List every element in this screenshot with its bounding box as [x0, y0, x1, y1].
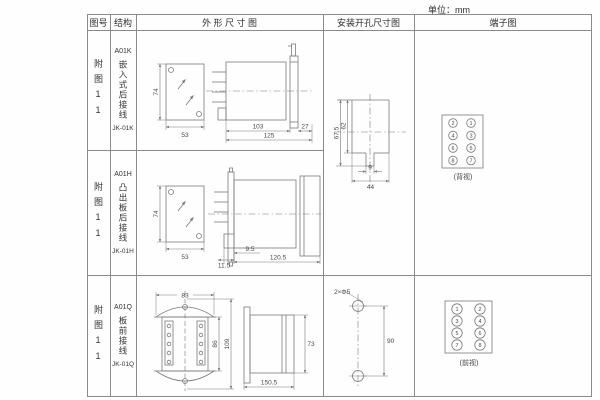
terminal-number: 6: [478, 331, 481, 337]
terminal-number: 4: [451, 134, 454, 140]
terminal-number: 4: [478, 319, 481, 325]
terminal-number: 2: [451, 121, 454, 127]
terminal-number: 1: [469, 121, 472, 127]
grid-line: [323, 14, 324, 397]
dim-cutout-outer-h: 67.5: [334, 126, 341, 139]
dim-side-a: 11.5: [218, 263, 231, 270]
front-view: 74 53: [153, 186, 204, 261]
code-row3: JK-01Q: [112, 361, 134, 368]
side-view: 73 150.5: [244, 307, 315, 390]
model-row3: A01Q: [114, 304, 132, 311]
header-structure: 结构: [110, 14, 136, 30]
dim-side-height: 73: [307, 341, 315, 348]
dim-side-b: 27: [301, 124, 309, 131]
grid-line: [87, 275, 592, 276]
dim-front-height: 74: [153, 210, 160, 218]
fig-no-cell-row1: 附图11: [87, 30, 110, 150]
outline-drawing-jk01h: 74 53 9.5 11.5 120.5: [152, 166, 322, 269]
spec-sheet-page: 单位：mm 图号 结构 外 形 尺 寸 图 安装开孔尺寸图 端子图 附图11 A…: [0, 0, 600, 400]
front-view: 83 86 109: [154, 291, 234, 391]
terminal-number: 7: [469, 159, 472, 165]
structure-desc-row2: 凸出板后接线: [117, 183, 129, 243]
header-outline: 外 形 尺 寸 图: [136, 14, 323, 30]
terminal-number: 6: [451, 146, 454, 152]
terminal-number: 3: [455, 319, 458, 325]
model-row1: A01K: [114, 48, 131, 55]
header-install: 安装开孔尺寸图: [323, 14, 414, 30]
terminal-number: 7: [455, 343, 458, 349]
terminal-number: 8: [451, 159, 454, 165]
dim-front-outer-h: 109: [224, 338, 231, 349]
dim-side-length: 150.5: [261, 380, 278, 387]
outline-drawing-jk01k: 74 53 103 27 125: [152, 44, 322, 147]
dim-front-width: 53: [181, 254, 189, 261]
terminal-number: 2: [478, 307, 481, 313]
dim-front-inner-h: 86: [212, 340, 219, 348]
terminal-diagram-q: 1 2 3 4 5 6 7 8: [444, 300, 494, 355]
grid-line: [87, 30, 592, 31]
dim-side-c: 120.5: [270, 255, 287, 262]
code-row2: JK-01H: [112, 248, 134, 255]
grid-line: [414, 14, 415, 397]
side-view: 103 27 125: [206, 44, 314, 143]
structure-cell-row3: A01Q 板前接线 JK-01Q: [110, 275, 136, 397]
structure-desc-row1: 嵌入式后接线: [117, 60, 129, 120]
fig-no-row3: 附图11: [92, 305, 105, 367]
outline-drawing-jk01q: 83 86 109 73 150.5: [146, 287, 318, 394]
terminal-number: 1: [455, 307, 458, 313]
structure-cell-row1: A01K 嵌入式后接线 JK-01K: [110, 30, 136, 150]
header-fig-no: 图号: [87, 14, 110, 30]
dim-side-c: 125: [264, 133, 275, 140]
dim-hole-spacing: 90: [387, 338, 395, 345]
dim-cutout-width: 44: [367, 184, 375, 191]
dim-side-a: 103: [253, 124, 264, 131]
view-label-rear: (背视): [440, 172, 486, 182]
dim-front-width: 53: [181, 132, 189, 139]
terminal-diagram-kh: 2 1 4 3 6 5 8 7: [441, 114, 485, 170]
model-row2: A01H: [114, 171, 132, 178]
terminal-number: 5: [455, 331, 458, 337]
view-label-front: (前视): [444, 358, 494, 368]
install-cutout-drawing-kh: 67.5 62 9 44: [330, 92, 410, 192]
side-view: 9.5 11.5 120.5: [208, 168, 321, 270]
dim-side-b: 9.5: [245, 246, 254, 253]
hole-size-label: 2×Φ5: [334, 289, 351, 296]
fig-no-cell-row3: 附图11: [87, 275, 110, 397]
dim-front-top: 83: [181, 293, 189, 300]
grid-line: [136, 14, 137, 397]
fig-no-row1: 附图11: [92, 59, 105, 121]
structure-desc-row3: 板前接线: [117, 316, 129, 356]
dim-notch-width: 9: [368, 165, 372, 172]
code-row1: JK-01K: [112, 125, 133, 132]
dim-front-height: 74: [153, 88, 160, 96]
header-terminal: 端子图: [414, 14, 592, 30]
terminal-number: 8: [478, 343, 481, 349]
fig-no-row2: 附图11: [92, 182, 105, 244]
install-drill-drawing-q: 90 2×Φ5: [332, 288, 410, 393]
terminal-number: 5: [469, 146, 472, 152]
fig-no-cell-row2: 附图11: [87, 150, 110, 275]
dim-cutout-inner-h: 62: [341, 122, 348, 130]
structure-cell-row2: A01H 凸出板后接线 JK-01H: [110, 150, 136, 275]
terminal-number: 3: [469, 134, 472, 140]
front-view: 74 53: [153, 64, 204, 139]
